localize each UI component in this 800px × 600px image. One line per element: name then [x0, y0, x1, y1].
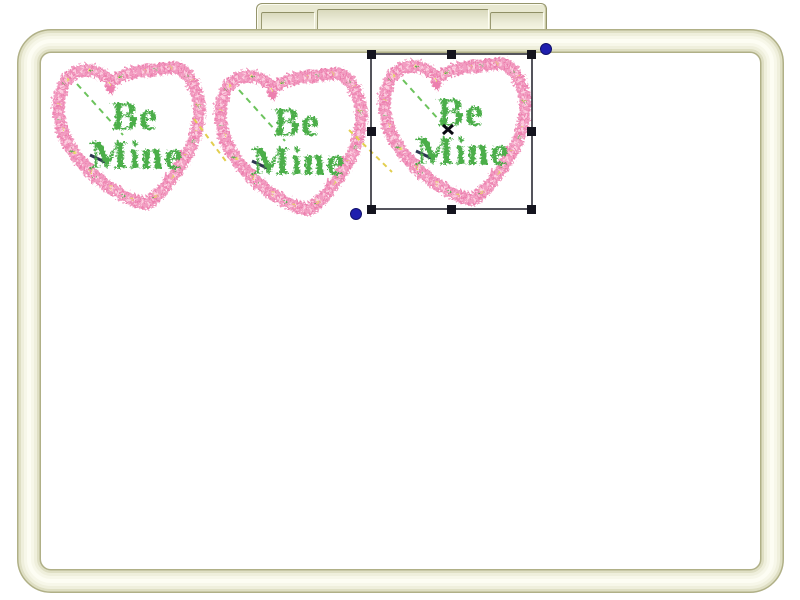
embroidery-design-1[interactable]	[56, 66, 197, 202]
rotation-dot-top-right[interactable]	[541, 44, 552, 55]
design-canvas[interactable]: Be Mine	[0, 0, 800, 600]
embroidery-design-2[interactable]	[218, 72, 359, 208]
selection-handle-middle-left[interactable]	[367, 127, 376, 136]
embroidery-design-3[interactable]	[382, 62, 523, 198]
selection-handle-bottom-right[interactable]	[527, 205, 536, 214]
selection-handle-middle-right[interactable]	[527, 127, 536, 136]
selection-handle-top-right[interactable]	[527, 50, 536, 59]
selection-handle-bottom-middle[interactable]	[447, 205, 456, 214]
selection-handle-top-left[interactable]	[367, 50, 376, 59]
embroidery-workspace: Be Mine	[0, 0, 800, 600]
rotation-dot-bottom-left[interactable]	[351, 209, 362, 220]
selection-handle-bottom-left[interactable]	[367, 205, 376, 214]
selection-handle-top-middle[interactable]	[447, 50, 456, 59]
